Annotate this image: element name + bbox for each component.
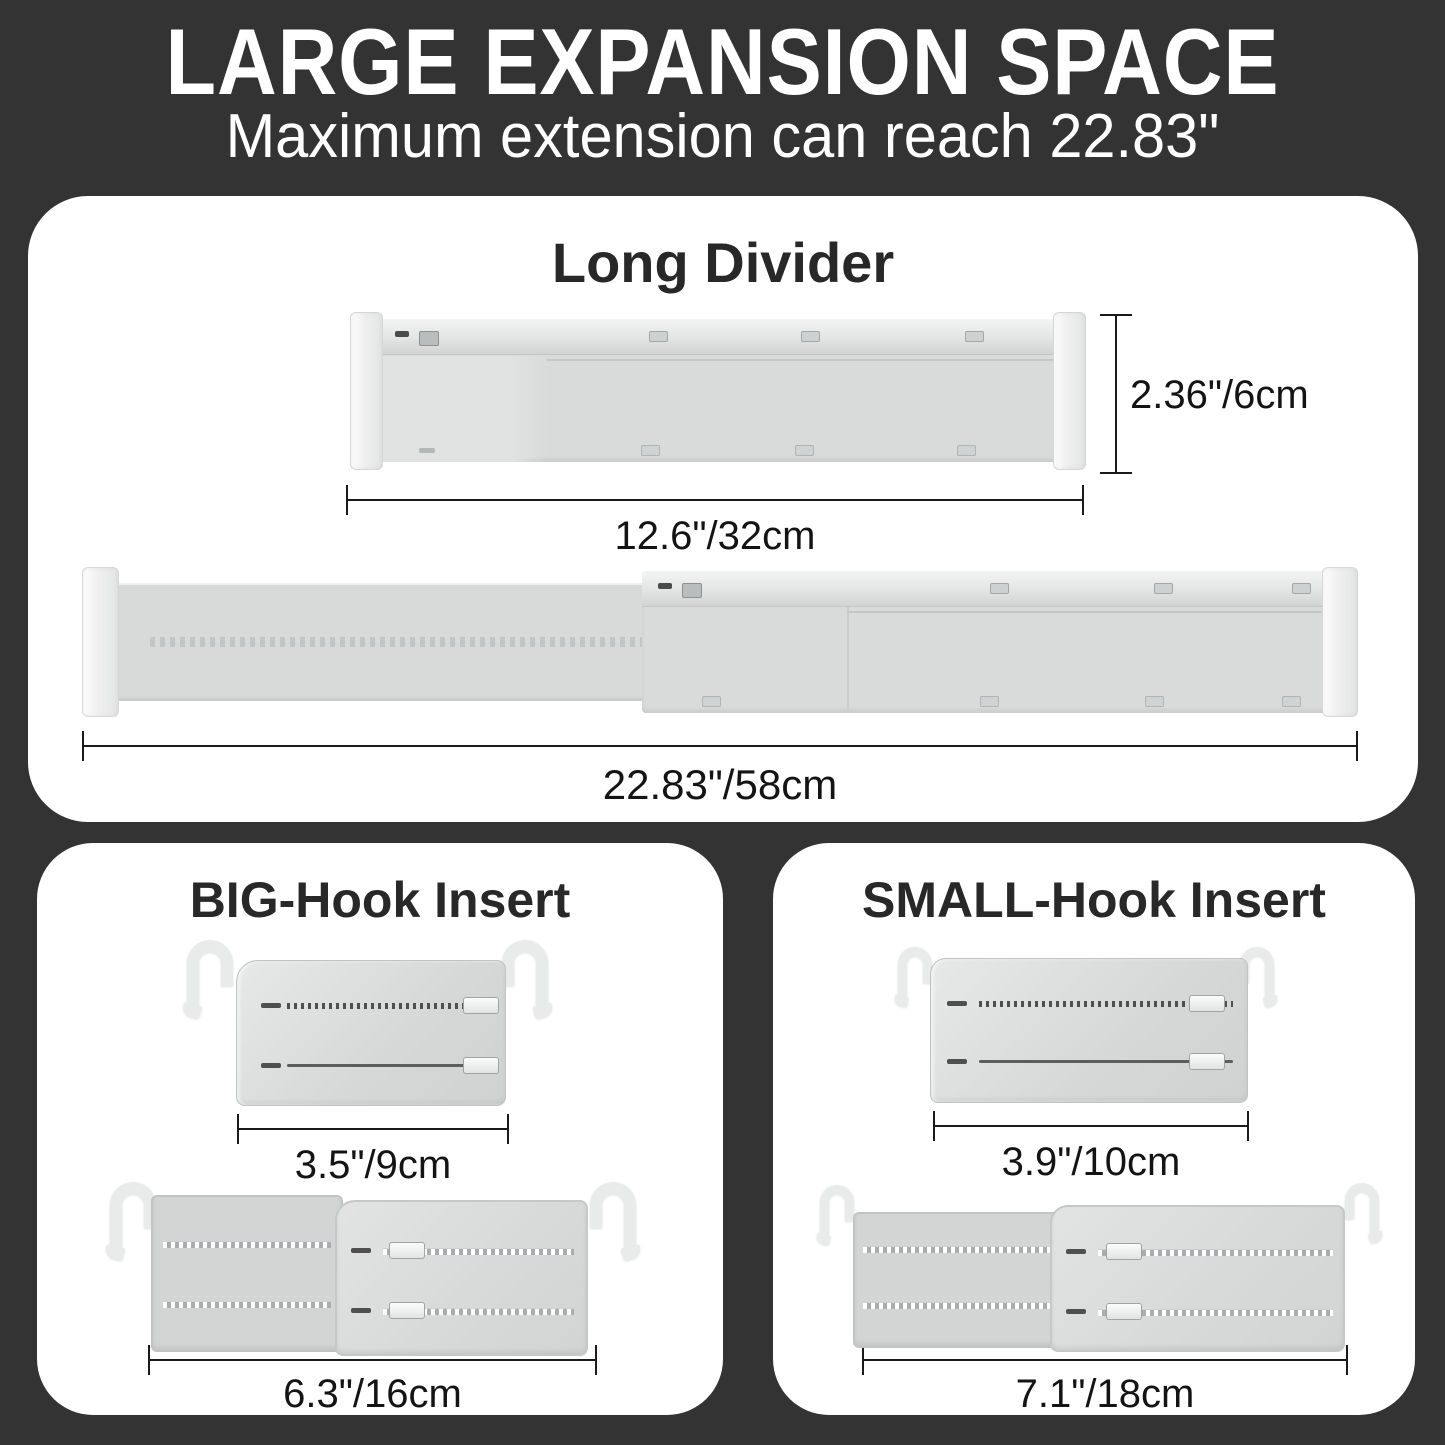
small-hook-extended-image (815, 1178, 1395, 1363)
long-divider-extended-image (82, 567, 1358, 717)
rail-tab (965, 331, 984, 342)
extended-width-dimension-line (82, 745, 1358, 747)
big-hook-collapsed-dimension-line (237, 1128, 509, 1130)
rail-tab (801, 331, 820, 342)
small-hook-panel: SMALL-Hook Insert 3.9"/10cm (773, 843, 1415, 1415)
small-hook-collapsed-image (893, 941, 1293, 1111)
divider-body (379, 319, 1057, 462)
small-hook-icon (820, 1185, 854, 1221)
extended-width-dimension-label: 22.83"/58cm (82, 762, 1358, 808)
small-hook-collapsed-dimension-line (933, 1125, 1249, 1127)
slider-clip (463, 997, 499, 1014)
big-hook-extended-image (107, 1173, 667, 1363)
small-hook-icon (1345, 1183, 1379, 1219)
big-hook-icon (187, 940, 233, 986)
insert-right-panel (1050, 1205, 1345, 1352)
slider-clip (1106, 1303, 1142, 1320)
serrated-track (863, 1302, 1055, 1309)
divider-end-cap-left (350, 312, 383, 470)
divider-top-rail (379, 319, 1057, 355)
small-hook-icon (898, 947, 932, 983)
track-stop (261, 1063, 281, 1068)
slider-clip (389, 1242, 425, 1259)
track-stop (947, 1001, 967, 1006)
long-divider-title: Long Divider (28, 232, 1418, 294)
inner-slide-face (379, 356, 547, 462)
long-divider-collapsed-image (350, 312, 1086, 470)
rail-tab (1292, 583, 1311, 594)
big-hook-panel: BIG-Hook Insert 3.5"/9cm (37, 843, 723, 1415)
long-divider-panel: Long Divider 2 (28, 196, 1418, 822)
insert-left-panel (853, 1212, 1065, 1348)
small-hook-extended-dimension-line (862, 1359, 1348, 1361)
slider-clip (463, 1057, 499, 1074)
divider-outer-shell (642, 571, 1328, 713)
small-hook-extended-dimension-label: 7.1"/18cm (862, 1371, 1348, 1417)
product-infographic: LARGE EXPANSION SPACE Maximum extension … (0, 0, 1445, 1445)
big-hook-icon (590, 1182, 636, 1228)
divider-end-cap-right (1053, 312, 1086, 470)
rail-tab (702, 696, 721, 707)
bottom-mark (419, 448, 435, 453)
lock-mark-icon (395, 331, 409, 337)
height-dimension-label: 2.36"/6cm (1130, 372, 1410, 418)
ratchet-track (150, 637, 655, 647)
slider-clip (1106, 1243, 1142, 1260)
collapsed-width-dimension-line (346, 499, 1084, 501)
serrated-track (163, 1241, 331, 1248)
insert-left-panel (151, 1195, 343, 1352)
track-stop (1066, 1249, 1086, 1254)
rail-tab (1154, 583, 1173, 594)
rail-tab (1145, 696, 1164, 707)
divider-seam (547, 359, 1054, 361)
serrated-track (287, 1003, 491, 1009)
slider-clip (389, 1302, 425, 1319)
clip-icon (419, 331, 439, 346)
rail-tab (649, 331, 668, 342)
lock-mark-icon (658, 583, 672, 589)
height-dimension-line (1115, 314, 1117, 474)
divider-top-rail (642, 571, 1328, 607)
slider-clip (1189, 1053, 1225, 1070)
clip-icon (682, 583, 702, 598)
slider-clip (1189, 995, 1225, 1012)
divider-seam (847, 611, 1324, 613)
big-hook-icon (502, 940, 548, 986)
rail-tab (957, 445, 976, 456)
smooth-track (287, 1064, 491, 1067)
divider-end-cap-right (1322, 567, 1358, 717)
insert-right-panel (335, 1200, 588, 1356)
track-stop (351, 1308, 371, 1313)
big-hook-title: BIG-Hook Insert (37, 871, 723, 929)
insert-body (930, 958, 1248, 1103)
divider-end-cap-left (82, 567, 119, 717)
big-hook-extended-dimension-label: 6.3"/16cm (148, 1371, 597, 1417)
serrated-track (163, 1301, 331, 1308)
big-hook-icon (110, 1182, 156, 1228)
rail-tab (795, 445, 814, 456)
track-stop (1066, 1309, 1086, 1314)
rail-tab (980, 696, 999, 707)
insert-body (236, 960, 506, 1106)
collapsed-width-dimension-label: 12.6"/32cm (346, 513, 1084, 559)
rail-tab (641, 445, 660, 456)
page-subtitle: Maximum extension can reach 22.83" (29, 104, 1416, 170)
divider-slide-arm (115, 583, 655, 701)
track-stop (947, 1059, 967, 1064)
serrated-track (863, 1246, 1055, 1253)
big-hook-extended-dimension-line (148, 1359, 597, 1361)
big-hook-collapsed-image (187, 938, 552, 1113)
rail-tab (990, 583, 1009, 594)
track-stop (261, 1003, 281, 1008)
page-title: LARGE EXPANSION SPACE (87, 12, 1359, 112)
shell-seam (847, 607, 849, 713)
track-stop (351, 1248, 371, 1253)
rail-tab (1282, 696, 1301, 707)
small-hook-title: SMALL-Hook Insert (773, 871, 1415, 929)
